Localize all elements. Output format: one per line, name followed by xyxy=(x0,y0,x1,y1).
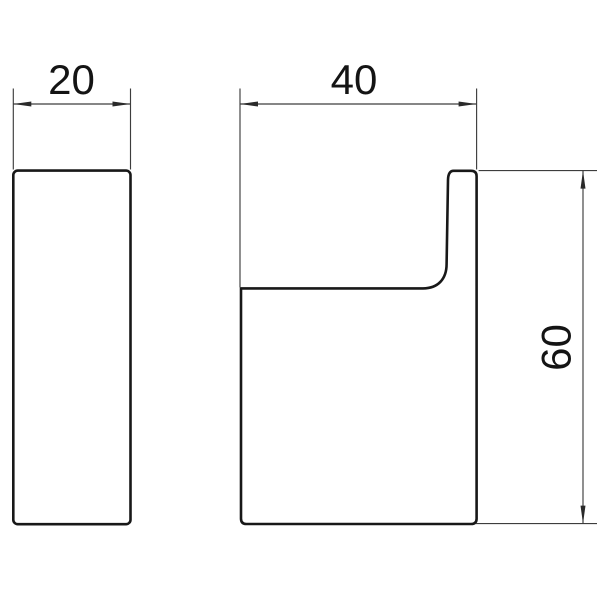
arrow-up-icon xyxy=(581,171,586,189)
arrow-right-icon xyxy=(113,102,131,107)
dimension-side-depth-label: 40 xyxy=(331,56,378,103)
dimension-front-width-label: 20 xyxy=(48,56,95,103)
dimension-side-depth xyxy=(240,89,477,288)
arrow-right-icon xyxy=(459,102,477,107)
technical-drawing: 20 40 60 xyxy=(0,0,600,600)
dimension-side-height-label: 60 xyxy=(533,324,580,371)
arrow-left-icon xyxy=(13,102,31,107)
front-view-outline xyxy=(13,171,130,525)
side-view-hook-outline xyxy=(241,171,477,524)
arrow-left-icon xyxy=(240,102,258,107)
drawing-page: 20 40 60 xyxy=(0,0,600,600)
arrow-down-icon xyxy=(581,506,586,524)
